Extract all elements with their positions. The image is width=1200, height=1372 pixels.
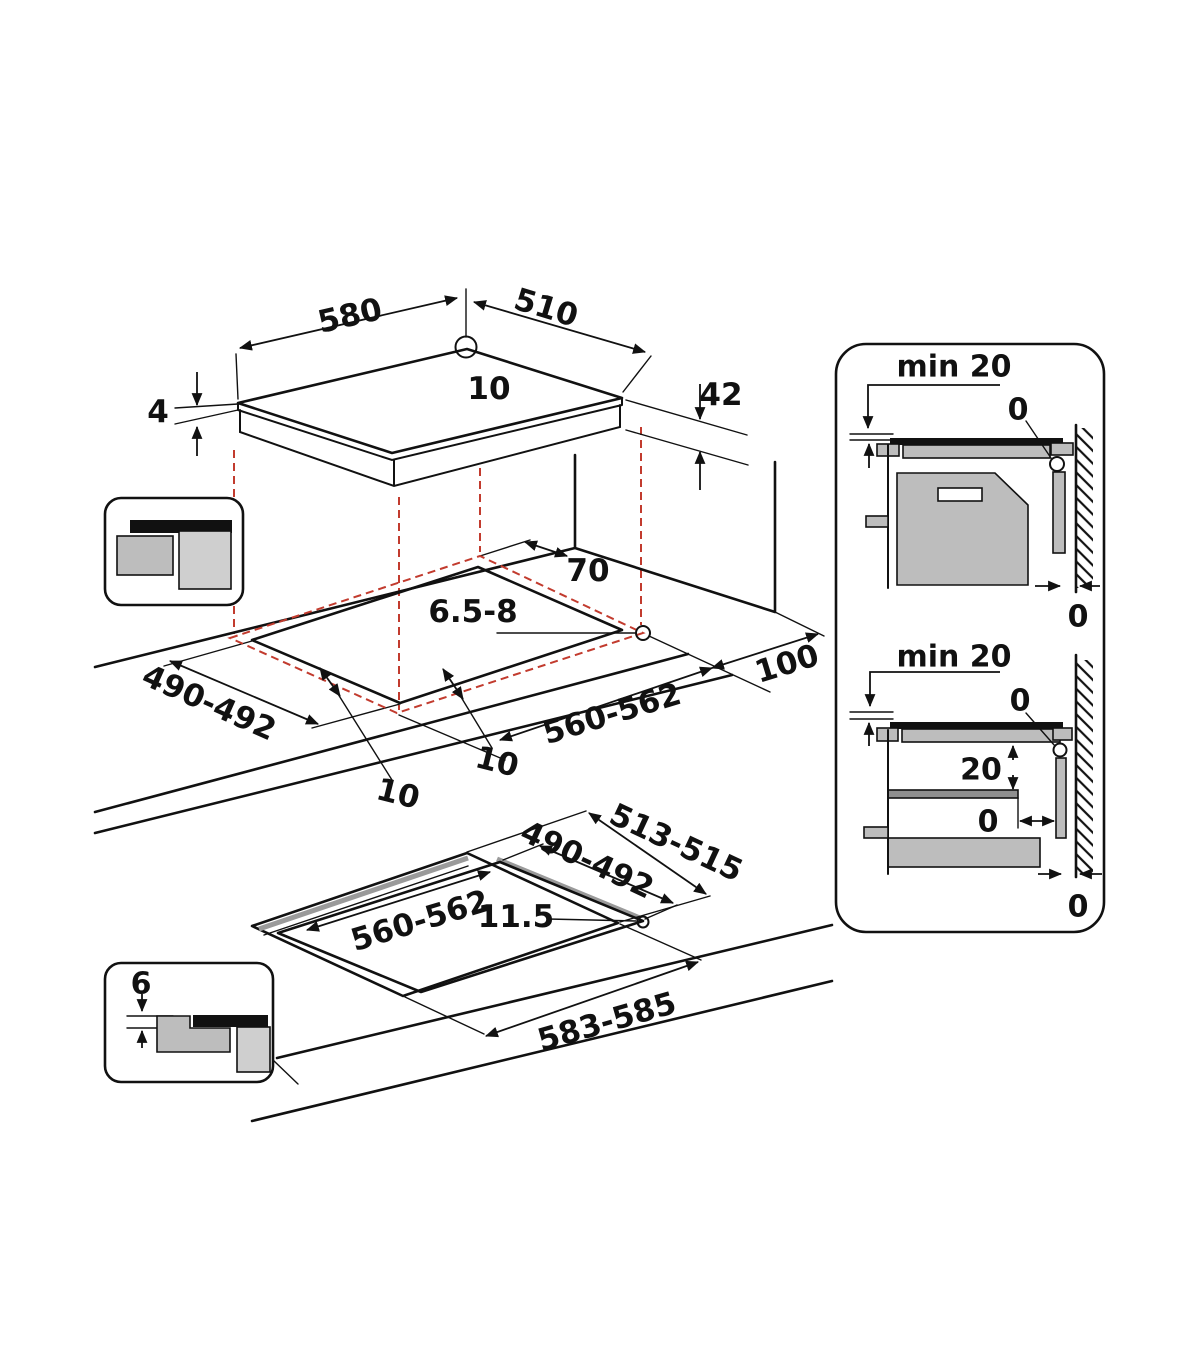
hob-box-icon-flush — [237, 1027, 270, 1072]
dim-recess-step: 6 — [131, 967, 152, 1002]
installation-diagram-page: 580 510 10 4 42 70 6. — [0, 0, 1200, 1372]
hob-box-icon — [179, 531, 231, 589]
label-min-clearance-bottom: min 20 — [896, 640, 1011, 675]
label-rear-gap-bottom: 0 — [1068, 890, 1089, 925]
deflector-bottom — [1056, 758, 1066, 838]
label-wall-gap-bottom: 0 — [1010, 684, 1031, 719]
flush-mount-inset: 6 — [105, 963, 298, 1084]
wall-gap-circle-bottom — [1054, 744, 1067, 757]
cabinet-icon — [117, 536, 173, 575]
label-rear-gap-top: 0 — [1068, 600, 1089, 635]
dim-body-height: 42 — [699, 377, 742, 413]
flush-glass-bar-icon — [193, 1015, 268, 1027]
label-min-clearance-top: min 20 — [896, 350, 1011, 385]
dim-recess-width: 583-585 — [534, 985, 681, 1059]
flush-cutout-view: 11.5 560-562 490-492 513-515 583-585 — [252, 797, 832, 1121]
dim-gap-side: 10 — [472, 739, 523, 784]
hob-body-section-top — [903, 445, 1050, 458]
oven-vent — [938, 488, 982, 501]
clearance-panels: min 20 0 0 min 20 — [836, 344, 1104, 932]
label-shelf-clearance: 20 — [960, 753, 1002, 788]
drawer-section — [888, 838, 1040, 867]
dim-cutout-depth: 490-492 — [137, 658, 282, 749]
wall-hatching-bottom — [1077, 660, 1093, 875]
dim-rear-clearance: 70 — [566, 553, 609, 589]
panel-drawer-clearance: min 20 0 20 0 0 — [850, 640, 1102, 925]
dim-top-depth: 510 — [510, 281, 582, 334]
deflector-top — [1053, 472, 1065, 553]
dim-glass-thickness: 4 — [147, 394, 169, 430]
dim-hole-diameter: 10 — [467, 371, 510, 407]
hob-body-section-bottom — [902, 729, 1060, 742]
shelf-section — [888, 790, 1018, 798]
dim-side-clearance: 100 — [751, 637, 823, 690]
wall-gap-circle-top — [1050, 457, 1064, 471]
glass-section-top — [890, 438, 1063, 445]
dim-fix-holes: 6.5-8 — [428, 594, 517, 630]
label-wall-gap-top: 0 — [1008, 393, 1029, 428]
label-shelf-gap: 0 — [978, 805, 999, 840]
dim-top-width: 580 — [314, 291, 385, 341]
dim-gap-front: 10 — [373, 771, 424, 816]
hob-installation-diagram: 580 510 10 4 42 70 6. — [0, 0, 1200, 1372]
hob-glass-top — [238, 349, 622, 453]
surface-mount-inset — [105, 498, 243, 605]
wall-hatching-top — [1077, 428, 1093, 588]
panel-oven-clearance: min 20 0 0 — [850, 350, 1100, 635]
